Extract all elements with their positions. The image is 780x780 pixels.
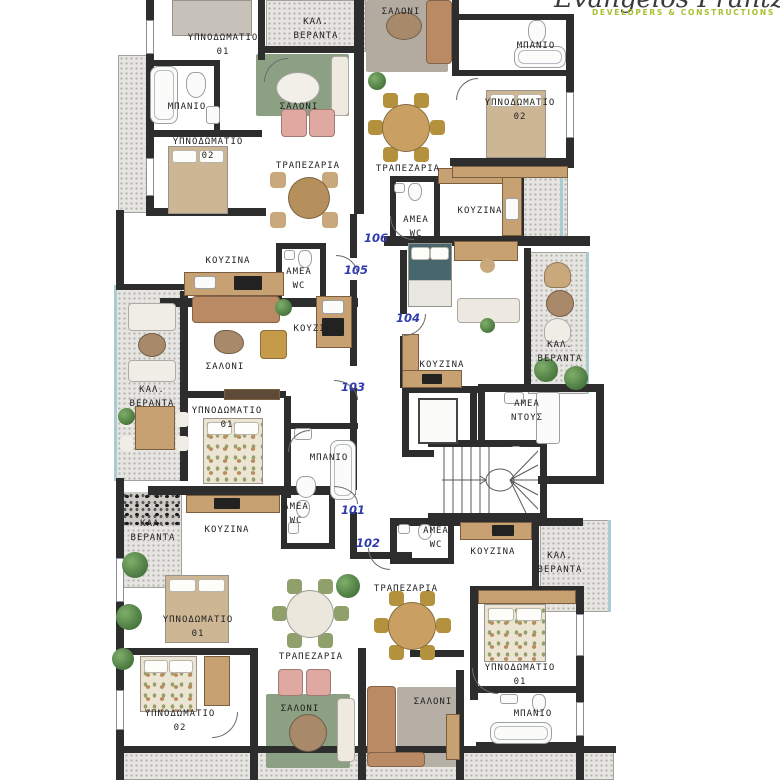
wall	[452, 14, 572, 20]
plant	[275, 299, 292, 316]
room-label: ΥΠΝΟΔΩΜΑΤΙΟ 02	[145, 708, 216, 736]
room-label: ΥΠΝΟΔΩΜΑΤΙΟ 02	[485, 97, 556, 125]
plant	[336, 574, 360, 598]
wall	[116, 210, 124, 288]
wall	[264, 46, 362, 53]
dining-table	[286, 590, 334, 638]
wall	[358, 648, 366, 780]
cooktop	[214, 498, 240, 509]
room-label: ΚΟΥΖΙΝΑ	[420, 359, 465, 373]
room-label: ΚΟΥΖΙΝΑ	[471, 546, 516, 560]
cooktop	[422, 374, 442, 384]
sink	[394, 183, 405, 193]
room-label: ΚΑΛ. ΒΕΡΑΝΤΑ	[538, 339, 583, 367]
room-label: ΤΡΑΠΕΖΑΡΙΑ	[276, 160, 340, 174]
armchair	[260, 330, 287, 359]
cooktop	[492, 525, 514, 536]
dining-table	[388, 602, 436, 650]
coffee-table	[214, 330, 244, 354]
desk-chair	[480, 258, 495, 273]
wall	[116, 284, 184, 290]
room-label: ΚΑΛ. ΒΕΡΑΝΤΑ	[538, 550, 583, 578]
bed	[172, 0, 252, 36]
door-arc[interactable]	[456, 78, 478, 100]
toilet	[186, 72, 206, 98]
wall	[214, 60, 220, 136]
window	[116, 690, 124, 730]
wall	[276, 243, 326, 249]
room-label: ΥΠΝΟΔΩΜΑΤΙΟ 01	[192, 405, 263, 433]
sink	[284, 250, 295, 260]
door-arc[interactable]	[212, 712, 238, 738]
room-label: ΑΜΕΑ WC	[423, 525, 449, 553]
cooktop	[234, 276, 262, 290]
wall	[402, 386, 409, 456]
sofa	[426, 0, 452, 64]
sink	[500, 694, 518, 704]
bed	[484, 604, 546, 662]
unit-number: 105	[344, 263, 368, 277]
appliance	[505, 198, 519, 220]
sink	[398, 524, 410, 534]
wall	[566, 14, 574, 168]
room-label: ΚΑΛ. ΒΕΡΑΝΤΑ	[131, 518, 176, 546]
toilet	[296, 476, 316, 498]
sink	[206, 106, 220, 124]
wall	[350, 214, 357, 258]
plant	[122, 552, 148, 578]
room-label: ΤΡΑΠΕΖΑΡΙΑ	[376, 163, 440, 177]
sofa	[192, 296, 280, 323]
room-label: ΜΠΑΝΙΟ	[517, 40, 556, 54]
dining-table	[135, 406, 175, 450]
sofa	[367, 686, 396, 756]
wall	[448, 518, 454, 564]
room-label: ΑΜΕΑ WC	[286, 266, 312, 294]
sofa	[367, 752, 425, 767]
appliance	[322, 300, 344, 314]
room-label: ΣΑΛΟΝΙ	[281, 703, 320, 717]
window	[576, 614, 584, 656]
room-label: ΚΟΥΖΙΝΑ	[458, 205, 503, 219]
wall	[596, 384, 604, 484]
elevator	[418, 398, 458, 444]
wardrobe	[204, 656, 230, 706]
bed	[140, 656, 197, 712]
room-label: ΜΠΑΝΙΟ	[168, 101, 207, 115]
wall	[452, 70, 570, 76]
room-label: ΑΜΕΑ WC	[403, 214, 429, 242]
wall	[281, 543, 335, 549]
plant	[112, 648, 134, 670]
wall	[434, 176, 440, 240]
sofa	[128, 360, 176, 382]
sofa	[337, 698, 355, 762]
room-label: ΚΟΥΖΙΝΑ	[206, 255, 251, 269]
unit-number: 104	[396, 311, 420, 325]
dining-table	[288, 177, 330, 219]
wall	[116, 648, 256, 655]
coffee-table	[138, 333, 166, 357]
veranda-floor	[118, 752, 614, 780]
window	[146, 20, 154, 54]
glass-railing	[114, 285, 117, 481]
cabinet	[446, 714, 460, 760]
window	[576, 702, 584, 736]
bed-fold	[409, 280, 451, 306]
unit-number: 102	[356, 536, 380, 550]
plant	[368, 72, 386, 90]
window	[566, 92, 574, 138]
room-label: ΑΜΕΑ WC	[283, 501, 309, 529]
room-label: ΤΡΑΠΕΖΑΡΙΑ	[279, 651, 343, 665]
glass-railing	[560, 166, 563, 246]
sofa	[331, 56, 349, 116]
dining-chairs	[334, 606, 349, 621]
tv-cabinet	[224, 389, 280, 400]
plant	[480, 318, 495, 333]
bathtub	[490, 722, 552, 744]
closet	[452, 166, 568, 178]
unit-number: 103	[341, 380, 365, 394]
brand-tagline: DEVELOPERS & CONSTRUCTIONS	[592, 8, 775, 17]
sink	[194, 276, 216, 289]
coffee-table	[289, 714, 327, 752]
wall	[452, 0, 459, 76]
unit-number: 101	[341, 503, 365, 517]
door-arc[interactable]	[288, 430, 310, 452]
sofa	[128, 303, 176, 331]
armchair	[278, 669, 303, 696]
wall	[450, 158, 572, 166]
armchair	[544, 262, 571, 288]
room-label: ΣΑΛΟΝΙ	[414, 696, 453, 710]
coffee-table	[546, 290, 574, 317]
room-label: ΤΡΑΠΕΖΑΡΙΑ	[374, 583, 438, 597]
dining-chairs	[270, 172, 286, 188]
room-label: ΣΑΛΟΝΙ	[206, 361, 245, 375]
closet	[478, 590, 576, 604]
wall	[180, 291, 188, 481]
room-label: ΜΠΑΝΙΟ	[514, 708, 553, 722]
wall	[320, 243, 326, 301]
bathtub	[150, 66, 178, 124]
armchair	[306, 669, 331, 696]
wall	[524, 248, 531, 386]
room-label: ΜΠΑΝΙΟ	[310, 452, 349, 466]
unit-number: 106	[364, 231, 388, 245]
dining-table	[382, 104, 430, 152]
bed	[408, 243, 452, 307]
room-label: ΚΑΛ. ΒΕΡΑΝΤΑ	[130, 384, 175, 412]
toilet	[408, 183, 422, 201]
wall	[390, 558, 454, 564]
staircase	[434, 447, 538, 513]
glass-railing	[608, 520, 611, 612]
window	[146, 158, 154, 196]
plant	[116, 604, 142, 630]
room-label: ΚΟΥΖΙΝΑ	[294, 323, 339, 337]
door-arc[interactable]	[368, 548, 390, 570]
room-label: ΑΜΕΑ ΝΤΟΥΣ	[511, 398, 543, 426]
room-label: ΥΠΝΟΔΩΜΑΤΙΟ 02	[173, 136, 244, 164]
floor-plan: ΥΠΝΟΔΩΜΑΤΙΟ 01 ΜΠΑΝΙΟ ΚΑΛ. ΒΕΡΑΝΤΑ ΣΑΛΟΝ…	[0, 0, 780, 780]
wall	[400, 250, 407, 314]
plant	[564, 366, 588, 390]
room-label: ΣΑΛΟΝΙ	[280, 101, 319, 115]
dining-chairs	[436, 618, 451, 633]
room-label: ΚΑΛ. ΒΕΡΑΝΤΑ	[294, 16, 339, 44]
dining-chairs	[430, 120, 445, 135]
room-label: ΥΠΝΟΔΩΜΑΤΙΟ 01	[188, 32, 259, 60]
wall	[354, 0, 364, 214]
room-label: ΚΟΥΖΙΝΑ	[205, 524, 250, 538]
room-label: ΣΑΛΟΝΙ	[382, 6, 421, 20]
wall	[250, 648, 258, 780]
wall	[540, 440, 547, 520]
wall	[148, 486, 356, 495]
room-label: ΥΠΝΟΔΩΜΑΤΙΟ 01	[485, 662, 556, 690]
wall	[116, 478, 124, 780]
room-label: ΥΠΝΟΔΩΜΑΤΙΟ 01	[163, 614, 234, 642]
wall	[410, 650, 464, 657]
